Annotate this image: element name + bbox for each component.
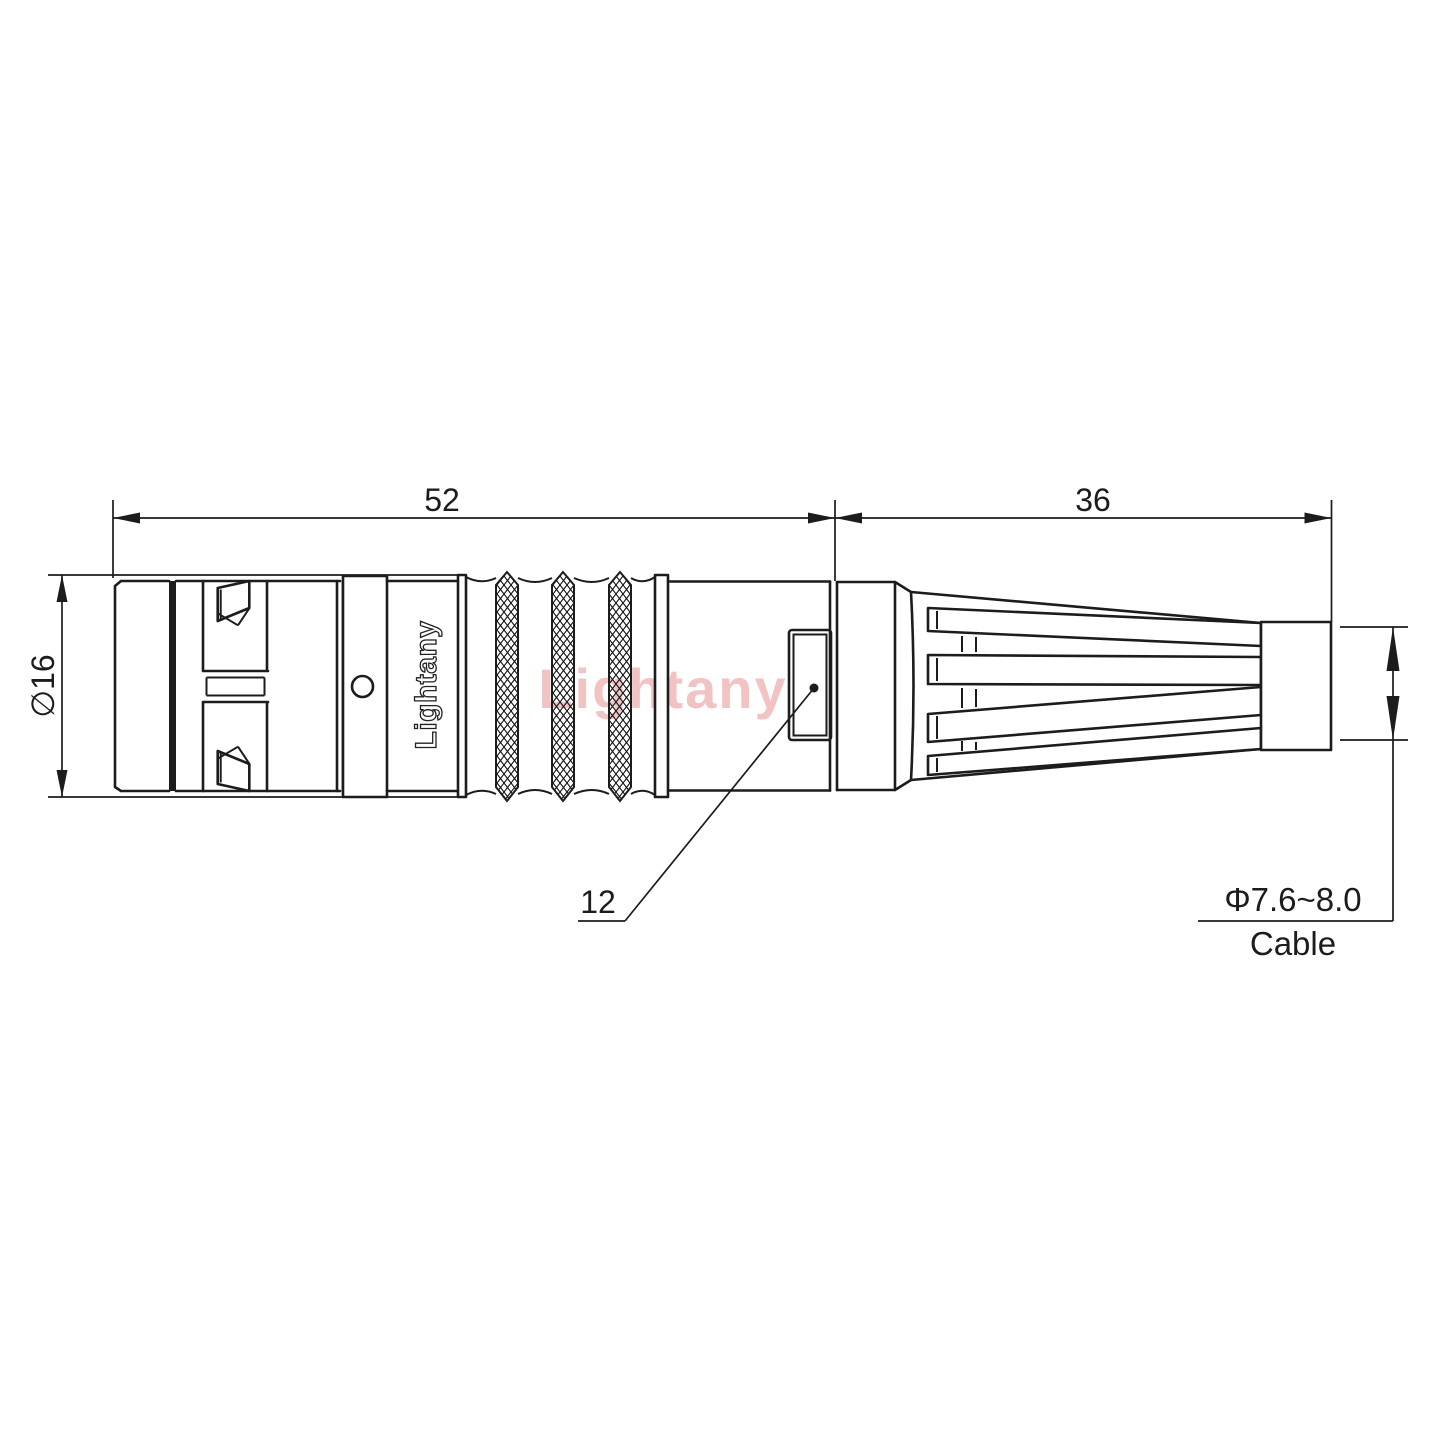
strain-relief-boot <box>911 592 1331 780</box>
technical-drawing-page: Lightany Lightany <box>0 0 1440 1440</box>
arrow-right <box>1305 513 1332 524</box>
marking-section: Lightany <box>387 581 458 791</box>
dimensions: 52 36 ∅16 12 Φ7.6~8.0 Cable <box>25 482 1408 962</box>
dimension-52: 52 <box>113 482 835 581</box>
diameter-label: ∅16 <box>25 654 61 717</box>
dimension-36-label: 36 <box>1075 482 1111 518</box>
arrow-up <box>1387 627 1400 671</box>
knurl-flange-left <box>458 575 466 797</box>
knurl-flange-right <box>655 575 668 797</box>
connector-drawing: Lightany Lightany <box>0 0 1440 1440</box>
boot-fin-1 <box>928 608 1261 646</box>
brand-marking: Lightany <box>410 621 443 750</box>
arrow-down <box>57 770 68 797</box>
latch-center-bar <box>207 678 265 696</box>
grip-collar <box>343 576 387 797</box>
arrow-left <box>835 513 862 524</box>
insert-dimension-label: 12 <box>580 884 616 920</box>
latch-mechanism <box>203 581 268 791</box>
arrow-right <box>808 513 835 524</box>
boot-fin-2 <box>928 655 1261 685</box>
knurl-band-2 <box>552 572 574 801</box>
end-cap <box>837 582 914 790</box>
section-joint-2 <box>830 582 837 791</box>
cable-collar <box>1261 622 1331 750</box>
arrow-up <box>57 575 68 602</box>
cable-dimension-label: Φ7.6~8.0 <box>1224 881 1361 918</box>
arrow-down <box>1387 696 1400 740</box>
arrow-left <box>113 513 140 524</box>
crimp-window <box>789 630 831 740</box>
knurl-band-3 <box>609 572 631 801</box>
dimension-52-label: 52 <box>424 482 460 518</box>
dimension-36: 36 <box>835 482 1332 622</box>
cable-word-label: Cable <box>1250 925 1336 962</box>
shell-groove <box>169 581 176 791</box>
knurl-band-1 <box>496 572 518 801</box>
